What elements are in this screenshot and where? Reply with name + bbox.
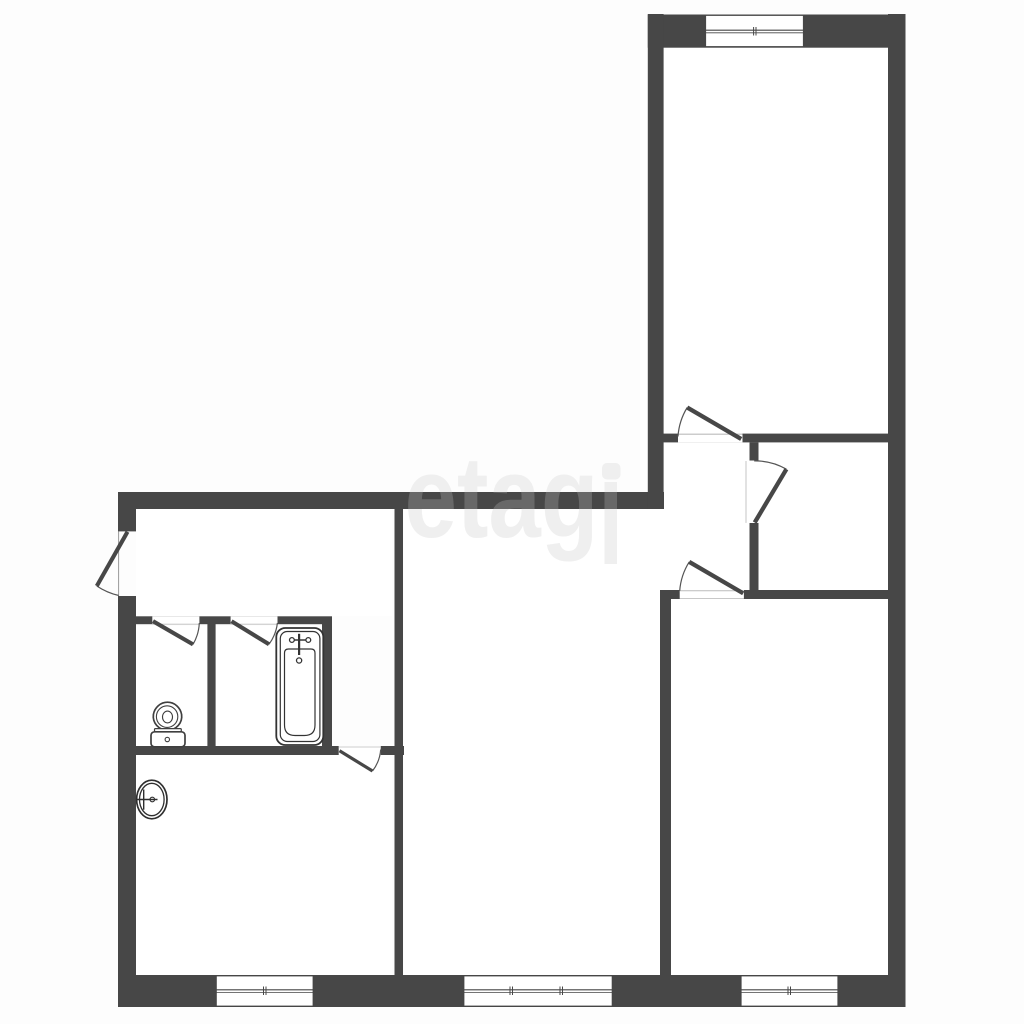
svg-text:etag: etag bbox=[405, 432, 599, 562]
